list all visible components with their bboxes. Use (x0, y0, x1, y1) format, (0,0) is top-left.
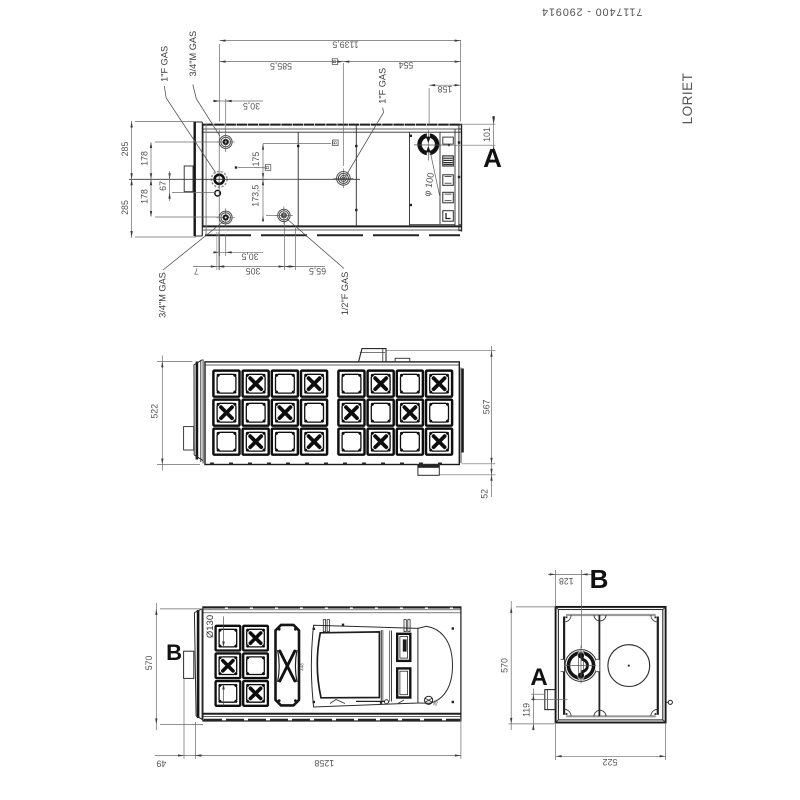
svg-text:LORIET: LORIET (680, 73, 695, 125)
svg-text:178: 178 (139, 189, 149, 204)
svg-text:1258: 1258 (314, 758, 334, 768)
svg-text:585,5: 585,5 (270, 61, 292, 71)
svg-text:554: 554 (398, 60, 413, 70)
svg-text:B: B (166, 640, 182, 665)
svg-text:522: 522 (150, 404, 160, 419)
svg-text:119: 119 (521, 703, 531, 717)
svg-text:52: 52 (480, 489, 490, 499)
svg-text:1/2"F GAS: 1/2"F GAS (340, 272, 350, 316)
svg-text:B: B (590, 564, 609, 594)
svg-text:101: 101 (482, 127, 492, 142)
svg-text:Ø130: Ø130 (205, 615, 216, 638)
svg-text:3/4"M GAS: 3/4"M GAS (158, 272, 168, 318)
svg-text:1"F GAS: 1"F GAS (160, 46, 170, 82)
svg-text:567: 567 (482, 399, 492, 414)
svg-text:7: 7 (194, 267, 199, 277)
svg-text:7117400 - 290914: 7117400 - 290914 (541, 5, 642, 17)
svg-text:285: 285 (120, 200, 130, 215)
svg-text:A: A (530, 664, 547, 691)
svg-text:A: A (483, 143, 502, 173)
svg-text:3/4"M GAS: 3/4"M GAS (188, 31, 198, 77)
svg-text:B: B (332, 141, 338, 145)
svg-text:305: 305 (246, 266, 261, 276)
svg-text:570: 570 (499, 658, 509, 673)
svg-text:1139,5: 1139,5 (332, 39, 358, 49)
svg-text:175: 175 (251, 152, 261, 167)
svg-text:1"F GAS: 1"F GAS (378, 68, 388, 104)
svg-text:522: 522 (603, 757, 618, 767)
svg-text:30,5: 30,5 (241, 252, 258, 262)
svg-text:30,5: 30,5 (243, 101, 260, 111)
svg-text:158: 158 (437, 84, 452, 94)
svg-text:65,5: 65,5 (309, 266, 326, 276)
svg-text:448: 448 (299, 663, 304, 671)
svg-text:285: 285 (120, 142, 130, 157)
svg-text:173,5: 173,5 (251, 185, 261, 207)
svg-text:67: 67 (158, 181, 168, 191)
svg-text:570: 570 (144, 655, 154, 670)
svg-text:B: B (265, 165, 271, 169)
svg-text:49: 49 (156, 758, 166, 768)
svg-text:128: 128 (559, 576, 574, 586)
svg-text:178: 178 (139, 151, 149, 166)
